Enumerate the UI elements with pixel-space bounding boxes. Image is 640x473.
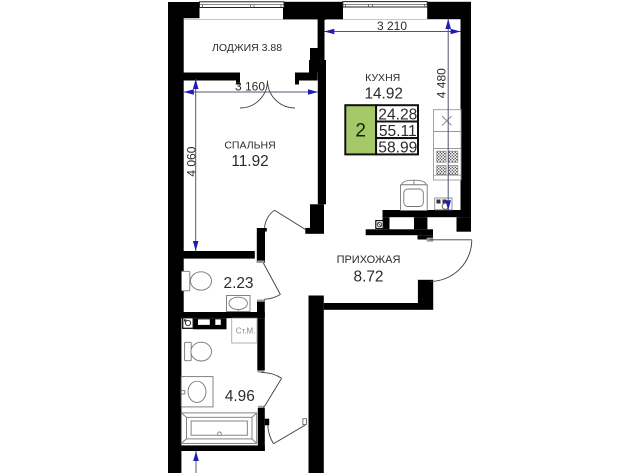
svg-text:ЛОДЖИЯ 3.88: ЛОДЖИЯ 3.88: [212, 42, 282, 54]
svg-text:Ст.М.: Ст.М.: [236, 327, 256, 336]
svg-text:4 060: 4 060: [184, 146, 198, 176]
svg-text:58.99: 58.99: [378, 139, 417, 156]
svg-text:КУХНЯ: КУХНЯ: [365, 72, 400, 84]
svg-text:ПРИХОЖАЯ: ПРИХОЖАЯ: [337, 254, 401, 266]
svg-text:55.11: 55.11: [379, 123, 417, 140]
svg-text:3 160: 3 160: [235, 79, 265, 93]
svg-text:8.72: 8.72: [354, 269, 384, 286]
svg-text:11.92: 11.92: [231, 153, 268, 170]
svg-text:4 480: 4 480: [434, 68, 448, 98]
svg-text:2.23: 2.23: [224, 275, 254, 292]
svg-text:14.92: 14.92: [364, 86, 403, 103]
svg-text:2: 2: [355, 121, 366, 142]
svg-text:4.96: 4.96: [225, 388, 255, 405]
svg-text:СПАЛЬНЯ: СПАЛЬНЯ: [224, 140, 275, 152]
svg-text:3 210: 3 210: [377, 19, 407, 33]
svg-text:24.28: 24.28: [378, 106, 417, 123]
